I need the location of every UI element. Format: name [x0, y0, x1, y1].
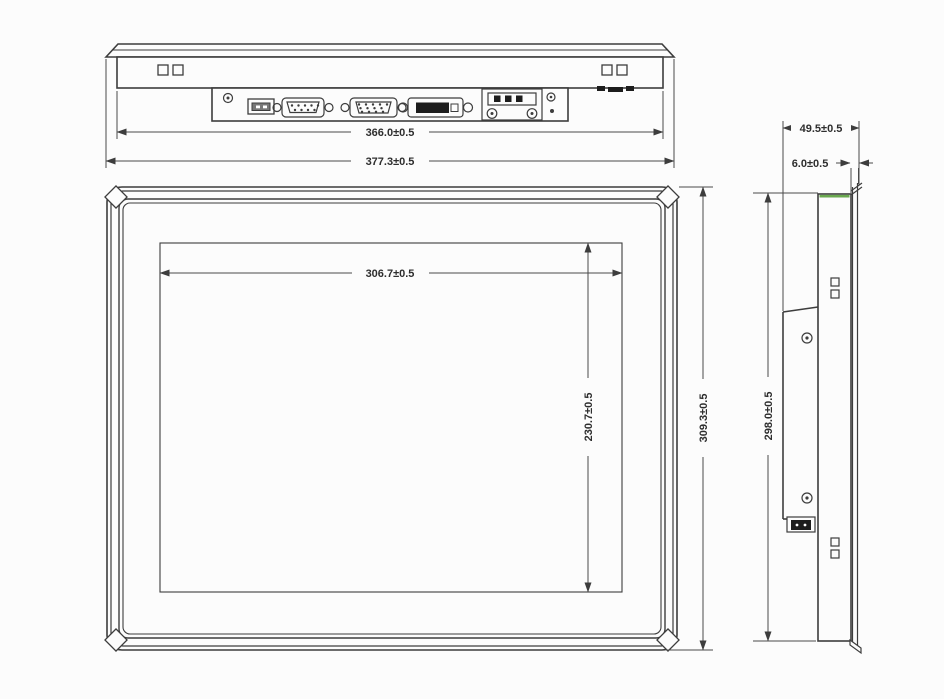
dim-298: 298.0±0.5 — [753, 193, 818, 641]
rear-enclosure — [783, 307, 818, 532]
dim-label-366: 366.0±0.5 — [366, 127, 415, 139]
mounting-screw-bottom — [802, 493, 812, 503]
dim-label-6: 6.0±0.5 — [792, 158, 829, 170]
mounting-screw-top — [802, 333, 812, 343]
io-recess — [212, 88, 568, 121]
front-view: 306.7±0.5 230.7±0.5 309.3±0.5 — [105, 186, 713, 651]
dim-label-377: 377.3±0.5 — [366, 156, 415, 168]
display-active-area — [160, 243, 622, 592]
dim-230: 230.7±0.5 — [581, 243, 595, 592]
side-view: 49.5±0.5 6.0±0.5 298.0±0.5 — [753, 121, 873, 653]
side-body — [818, 194, 851, 641]
dim-6: 6.0±0.5 — [786, 157, 873, 194]
chassis-body — [117, 57, 663, 88]
dim-306: 306.7±0.5 — [160, 266, 622, 280]
dim-label-298: 298.0±0.5 — [763, 392, 775, 441]
bottom-connector — [787, 517, 815, 532]
dim-label-49: 49.5±0.5 — [800, 123, 843, 135]
dim-label-230: 230.7±0.5 — [583, 393, 595, 442]
technical-drawing-canvas: 366.0±0.5 377.3±0.5 306.7±0.5 — [0, 0, 944, 699]
panel-pc-dimension-drawing: 366.0±0.5 377.3±0.5 306.7±0.5 — [0, 0, 944, 699]
top-view: 366.0±0.5 377.3±0.5 — [106, 44, 674, 168]
dim-label-309: 309.3±0.5 — [698, 394, 710, 443]
dim-label-306: 306.7±0.5 — [366, 268, 415, 280]
